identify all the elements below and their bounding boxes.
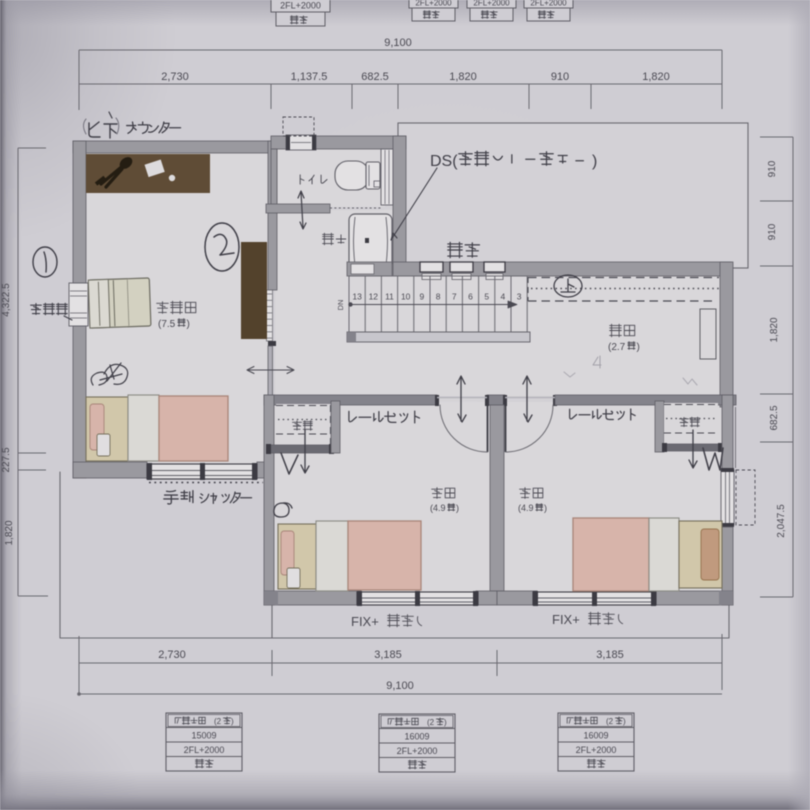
svg-text:5: 5 <box>484 292 489 302</box>
svg-text:3,185: 3,185 <box>374 649 402 661</box>
svg-text:): ) <box>187 319 190 330</box>
svg-text:15009: 15009 <box>191 731 216 741</box>
svg-text:910: 910 <box>767 223 778 240</box>
svg-text:): ) <box>592 153 597 170</box>
svg-text:(2: (2 <box>606 717 614 726</box>
svg-text:227.5: 227.5 <box>1 447 12 472</box>
svg-text:1,820: 1,820 <box>449 71 477 83</box>
svg-text:DN: DN <box>336 300 345 311</box>
svg-text:2FL+2000: 2FL+2000 <box>415 0 452 8</box>
svg-text:1,820: 1,820 <box>4 520 15 545</box>
svg-text:2FL+2000: 2FL+2000 <box>576 745 617 755</box>
svg-text:2FL+2000: 2FL+2000 <box>473 0 510 8</box>
svg-text:): ) <box>444 718 447 727</box>
svg-text:2,730: 2,730 <box>158 649 186 661</box>
svg-text:910: 910 <box>767 160 778 177</box>
svg-text:4: 4 <box>501 292 506 302</box>
svg-text:1,820: 1,820 <box>769 317 780 342</box>
svg-text:(2: (2 <box>427 718 435 727</box>
svg-text:(2.7: (2.7 <box>608 342 626 353</box>
svg-text:): ) <box>231 717 234 726</box>
svg-text:3: 3 <box>517 292 522 302</box>
svg-text:9,100: 9,100 <box>384 37 412 49</box>
svg-text:12: 12 <box>369 292 379 302</box>
svg-text:): ) <box>623 717 626 726</box>
svg-text:2FL+2000: 2FL+2000 <box>184 745 225 755</box>
svg-text:): ) <box>544 503 547 513</box>
svg-text:(2: (2 <box>214 717 222 726</box>
svg-text:(7.5: (7.5 <box>158 319 176 330</box>
svg-text:3,185: 3,185 <box>596 649 624 661</box>
svg-text:DS(: DS( <box>430 153 458 170</box>
svg-text:910: 910 <box>551 71 569 83</box>
svg-text:9,100: 9,100 <box>386 680 414 692</box>
svg-text:4,322.5: 4,322.5 <box>1 283 12 317</box>
svg-text:11: 11 <box>385 292 394 302</box>
svg-text:(4.9: (4.9 <box>430 503 446 513</box>
svg-text:9: 9 <box>420 292 425 302</box>
svg-text:2FL+2000: 2FL+2000 <box>280 1 321 11</box>
svg-text:6: 6 <box>468 292 473 302</box>
svg-text:1,137.5: 1,137.5 <box>291 71 328 83</box>
svg-text:1,820: 1,820 <box>642 71 670 83</box>
svg-text:7: 7 <box>452 292 457 302</box>
svg-text:): ) <box>456 503 459 513</box>
svg-text:13: 13 <box>352 292 362 302</box>
svg-text:(4.9: (4.9 <box>518 503 534 513</box>
svg-text:682.5: 682.5 <box>769 405 780 430</box>
svg-text:): ) <box>637 342 640 353</box>
svg-text:2,047.5: 2,047.5 <box>776 504 787 538</box>
svg-text:2FL+2000: 2FL+2000 <box>530 0 567 8</box>
svg-text:2FL+2000: 2FL+2000 <box>397 746 438 756</box>
svg-text:16009: 16009 <box>404 732 429 742</box>
svg-text:FIX+: FIX+ <box>351 614 379 629</box>
svg-text:FIX+: FIX+ <box>552 612 580 627</box>
svg-text:16009: 16009 <box>583 731 608 741</box>
svg-text:682.5: 682.5 <box>361 71 389 83</box>
svg-text:2,730: 2,730 <box>161 71 189 83</box>
svg-text:10: 10 <box>401 292 411 302</box>
svg-text:8: 8 <box>436 292 441 302</box>
